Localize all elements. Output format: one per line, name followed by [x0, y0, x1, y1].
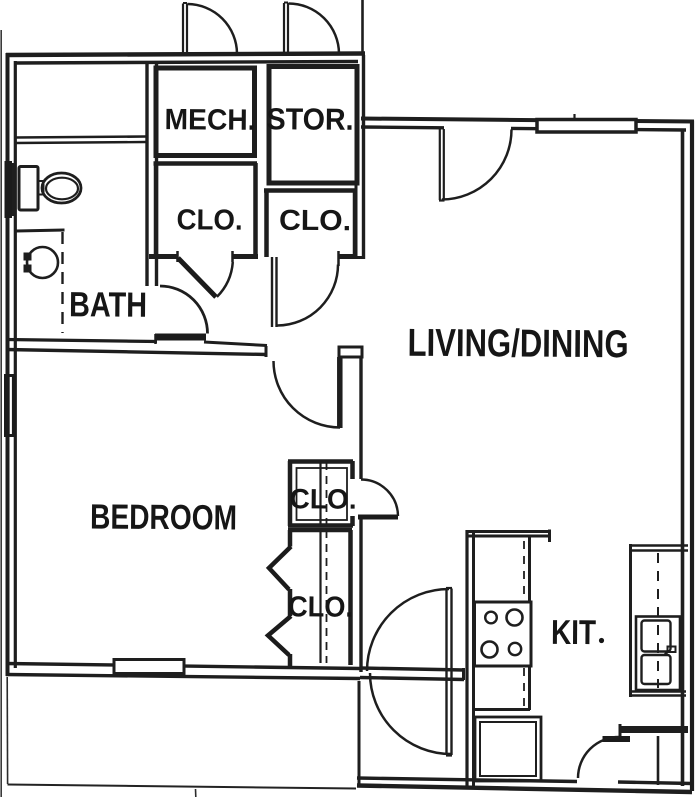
svg-text:LIVING/DINING: LIVING/DINING [407, 322, 628, 367]
svg-text:KIT: KIT [551, 614, 596, 652]
svg-text:BEDROOM: BEDROOM [90, 497, 237, 537]
svg-text:STOR.: STOR. [266, 102, 353, 137]
svg-text:MECH.: MECH. [164, 103, 255, 137]
svg-text:CLO.: CLO. [279, 205, 351, 238]
svg-text:BATH: BATH [69, 285, 147, 325]
svg-text:CLO.: CLO. [289, 483, 356, 514]
svg-text:CLO.: CLO. [288, 591, 353, 623]
svg-text:CLO.: CLO. [176, 204, 242, 236]
